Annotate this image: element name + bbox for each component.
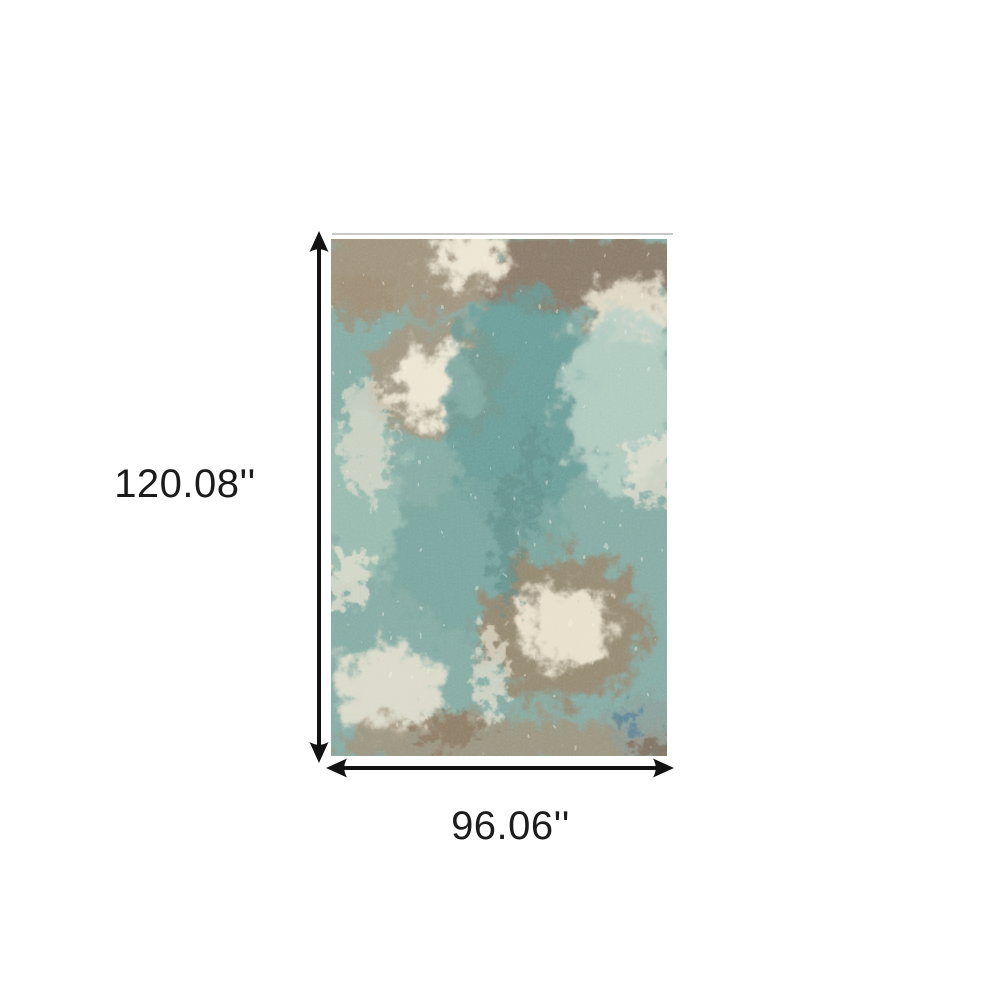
width-dimension-arrow	[326, 752, 674, 784]
arrow-head-up-icon	[310, 231, 329, 252]
height-dimension-arrow	[303, 231, 335, 763]
rug-image	[331, 239, 667, 756]
arrow-head-left-icon	[326, 759, 347, 778]
width-dimension-label: 96.06''	[413, 802, 608, 850]
rug-top-edge-line	[332, 233, 673, 235]
height-dimension-label: 120.08''	[90, 460, 280, 508]
rug-texture	[331, 239, 667, 756]
product-dimension-diagram: 120.08'' 96.06''	[0, 0, 1000, 1000]
arrow-head-right-icon	[653, 759, 674, 778]
rug-grain	[331, 239, 667, 756]
